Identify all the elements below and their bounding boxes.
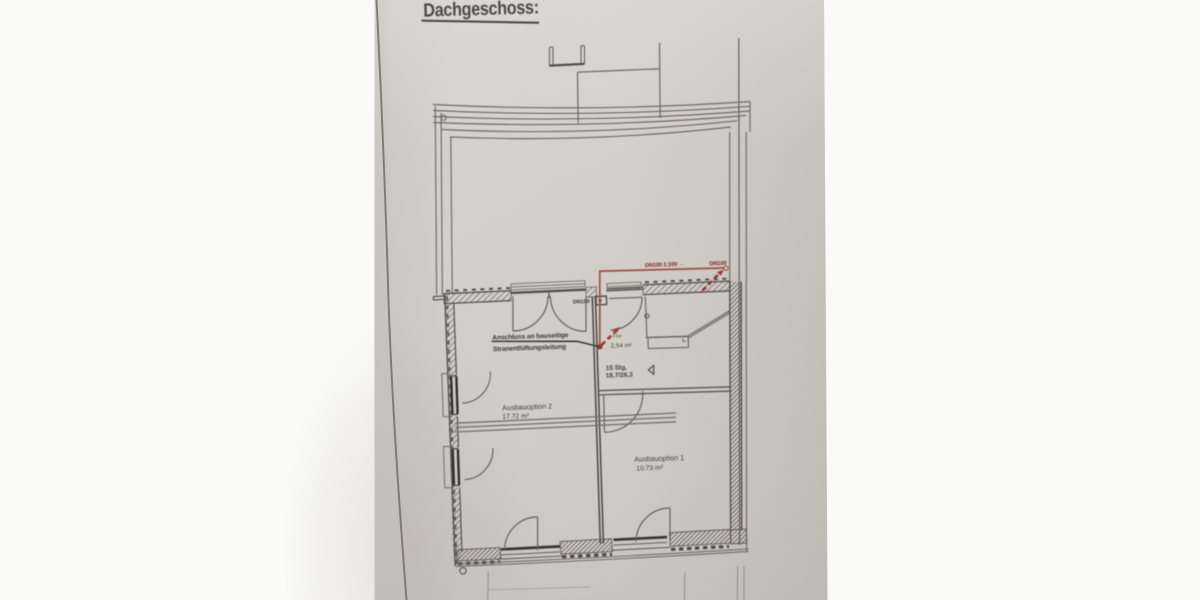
svg-text:2,54 m²: 2,54 m² (611, 342, 633, 350)
svg-text:DN100: DN100 (709, 261, 726, 268)
svg-text:Ausbauoption 2: Ausbauoption 2 (502, 401, 552, 412)
svg-text:Ausbauoption 1: Ausbauoption 1 (634, 453, 684, 464)
svg-text:18,7/26,3: 18,7/26,3 (606, 372, 634, 380)
svg-text:15 Stg.: 15 Stg. (606, 364, 628, 372)
svg-text:DN100: DN100 (573, 299, 590, 306)
svg-text:Dachgeschoss:: Dachgeschoss: (423, 0, 539, 21)
svg-text:10.73 m²: 10.73 m² (636, 465, 664, 473)
svg-text:17.72 m²: 17.72 m² (502, 413, 530, 421)
svg-text:Flur: Flur (613, 333, 622, 339)
